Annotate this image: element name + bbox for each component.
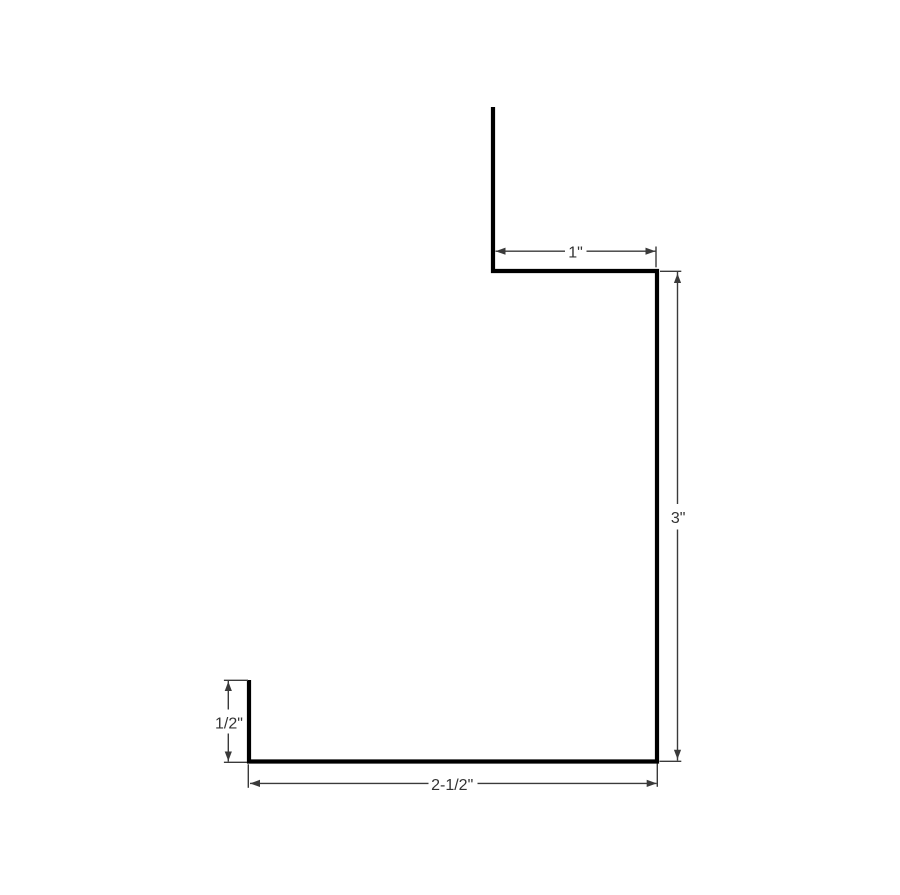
- svg-text:1/2": 1/2": [215, 716, 243, 733]
- svg-text:3": 3": [671, 510, 686, 527]
- svg-text:2-1/2": 2-1/2": [431, 777, 473, 794]
- svg-text:1": 1": [568, 245, 583, 262]
